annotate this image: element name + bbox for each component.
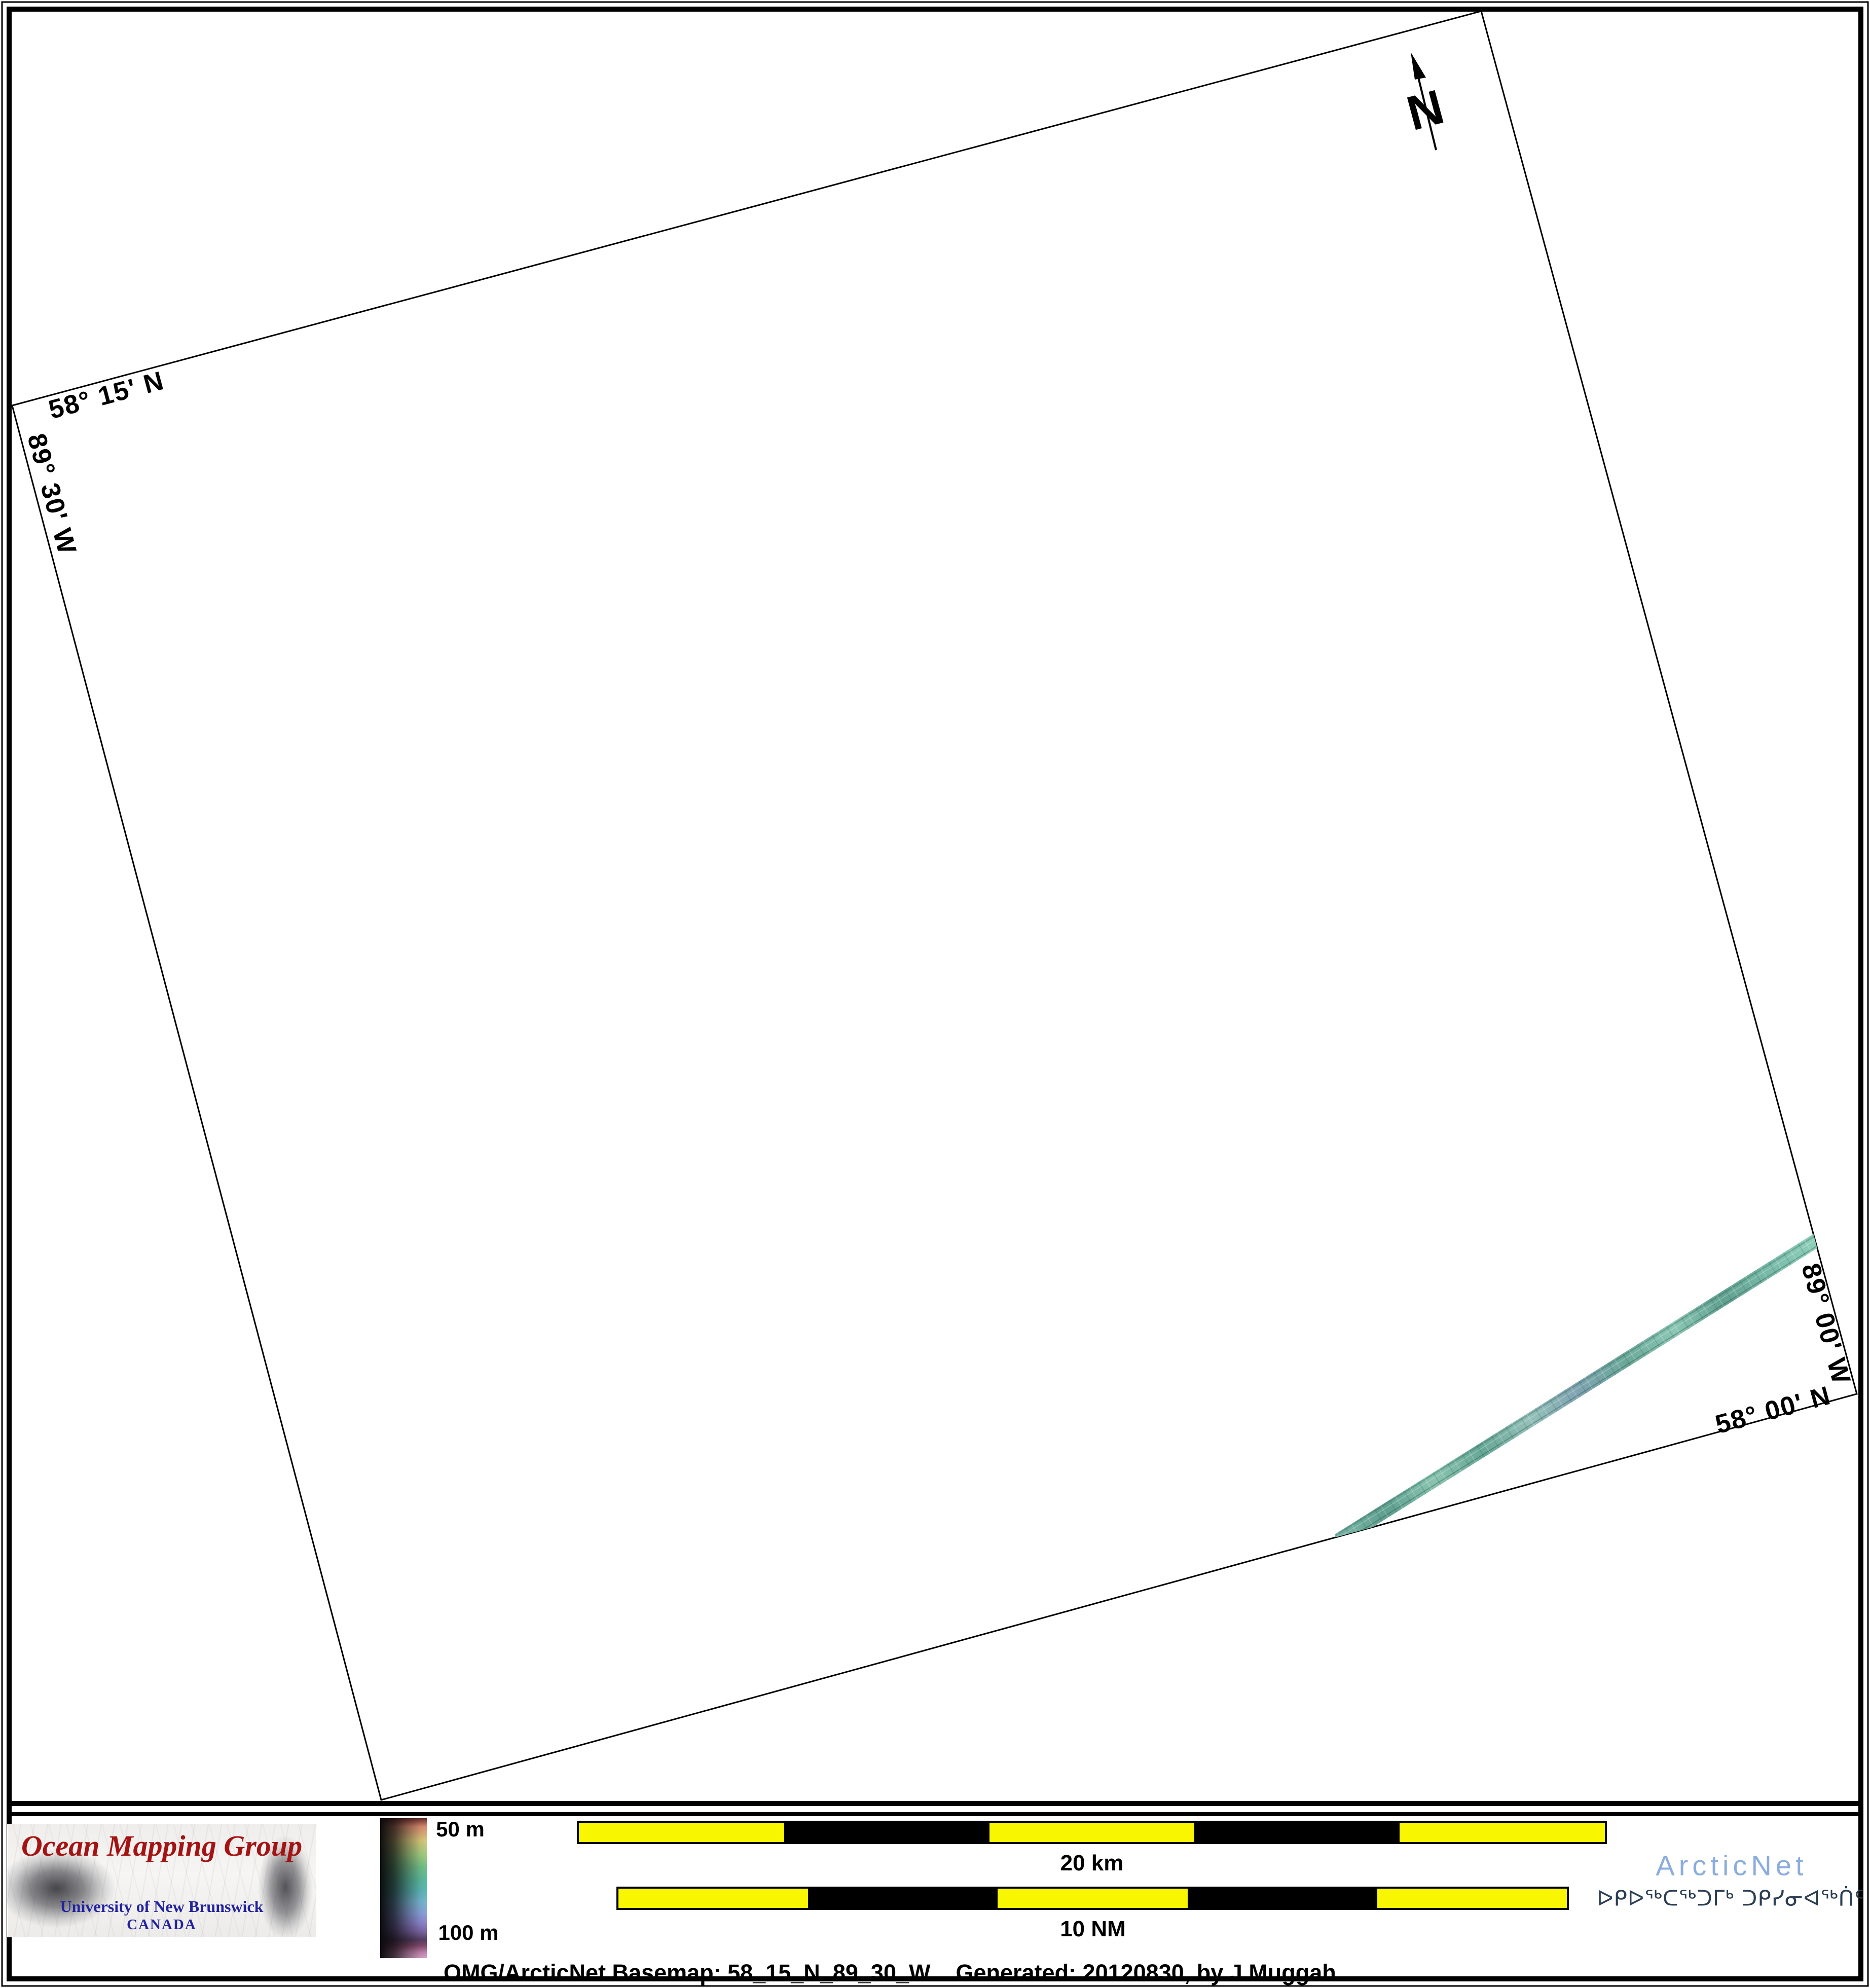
map-bottom-border: [12, 1801, 1858, 1806]
legend-top-border: [12, 1812, 1858, 1816]
scalebar-segment: [1188, 1889, 1377, 1908]
scalebar-nm: [616, 1887, 1569, 1910]
arcticnet-inuktitut: ᐅᑭᐅᖅᑕᖅᑐᒥᒃ ᑐᑭᓯᓂᐊᖅᑏᑦ: [1597, 1886, 1864, 1911]
scalebar-segment: [1194, 1823, 1400, 1842]
inner-frame: [9, 9, 1861, 1979]
basemap-caption: OMG/ArcticNet Basemap: 58_15_N_89_30_W G…: [444, 1960, 1336, 1986]
omg-logo-country: CANADA: [7, 1917, 316, 1933]
colorbar-bottom-label: 100 m: [438, 1921, 498, 1945]
scalebar-segment: [1377, 1889, 1567, 1908]
colorbar-top-label: 50 m: [436, 1817, 485, 1842]
map-graphics: [0, 0, 1870, 1988]
scalebar-nm-label: 10 NM: [1060, 1917, 1126, 1942]
scalebar-segment: [989, 1823, 1195, 1842]
scalebar-km-label: 20 km: [1060, 1851, 1124, 1876]
scalebar-segment: [618, 1889, 808, 1908]
scalebar-km: [577, 1821, 1607, 1844]
scalebar-segment: [998, 1889, 1187, 1908]
depth-colorbar: [380, 1818, 427, 1958]
omg-logo: Ocean Mapping Group University of New Br…: [7, 1824, 316, 1937]
omg-logo-title: Ocean Mapping Group: [7, 1829, 316, 1863]
omg-logo-university: University of New Brunswick: [7, 1897, 316, 1916]
scalebar-segment: [1400, 1823, 1605, 1842]
map-sheet: 58° 15' N 89° 30' W 89° 00' W 58° 00' N …: [0, 0, 1870, 1988]
outer-frame: [2, 2, 1868, 1986]
scalebar-segment: [784, 1823, 989, 1842]
arcticnet-logo: ArcticNet: [1656, 1849, 1807, 1882]
bathymetry-swath: [1335, 1234, 1821, 1547]
scalebar-segment: [579, 1823, 784, 1842]
map-boundary: [12, 11, 1857, 1800]
scalebar-segment: [808, 1889, 998, 1908]
